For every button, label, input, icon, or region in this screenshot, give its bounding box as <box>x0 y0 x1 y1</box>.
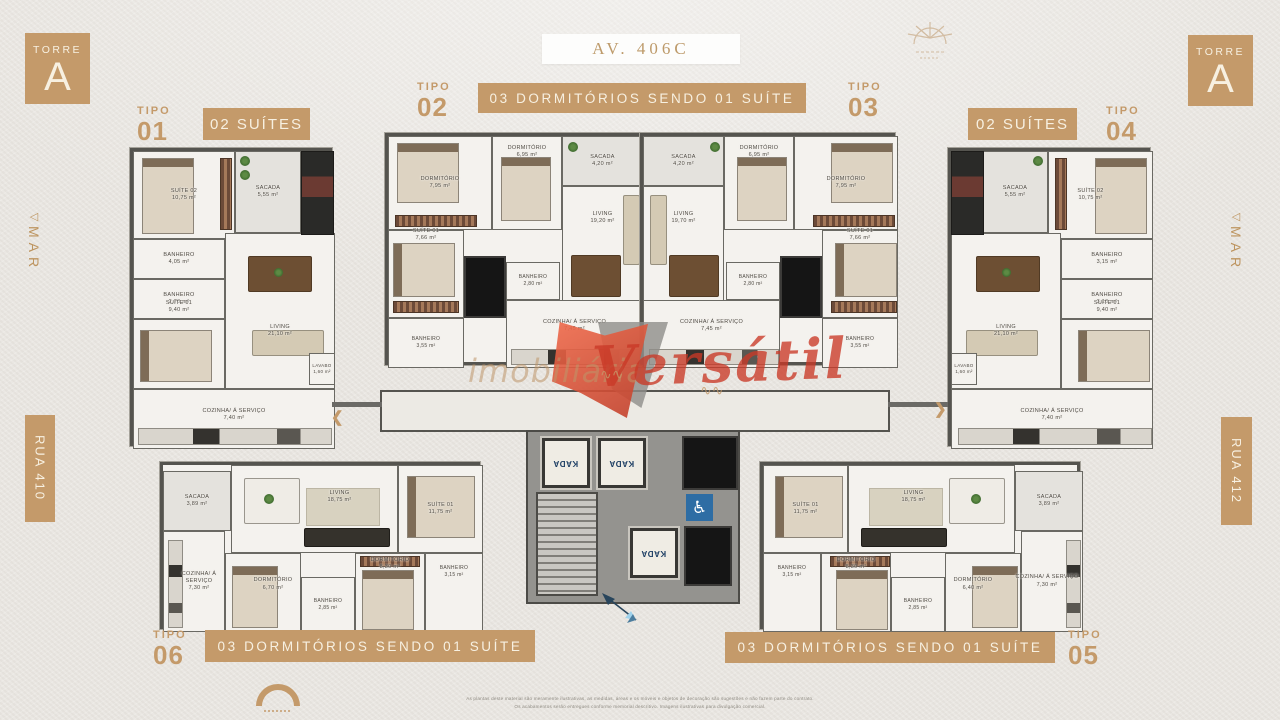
avenue-banner: AV. 406C <box>542 34 740 64</box>
room-area: 5,55 m² <box>1005 192 1026 199</box>
room-suite-02: SUÍTE 0210,75 m² <box>1048 151 1153 239</box>
room-cozinha: COZINHA/ Á SERVIÇO7,40 m² <box>951 389 1153 449</box>
mar-arrow-icon: ◁ <box>28 210 41 226</box>
room-name: BANHEIRO <box>1091 252 1122 259</box>
mar-arrow-icon: ◁ <box>1230 210 1243 226</box>
tipo-number: 06 <box>153 642 187 668</box>
room-area: 7,30 m² <box>189 585 210 592</box>
room-area: 4,05 m² <box>169 259 190 266</box>
room-area: 6,40 m² <box>963 585 984 592</box>
watermark-flourish-icon: ∿∿ <box>600 366 623 383</box>
elevator-shaft-block <box>684 526 732 586</box>
mar-direction-right: ◁ MAR <box>1228 210 1244 290</box>
room-name: DORMITÓRIO <box>837 557 876 564</box>
room-sacada: SACADA4,20 m² <box>643 136 724 186</box>
disclaimer-line-1: As plantas deste material são meramente … <box>430 695 850 703</box>
building-core: KADA KADA KADA ♿ <box>526 430 740 604</box>
room-dormitorio: DORMITÓRIO6,40 m² <box>945 553 1021 632</box>
room-area: 3,89 m² <box>1039 501 1060 508</box>
tipo-03-label: TIPO 03 <box>848 82 882 120</box>
room-area: 21,10 m² <box>994 331 1018 338</box>
room-suite-01: SUÍTE 019,40 m² <box>133 319 225 389</box>
unit-tipo-01: SUÍTE 0210,75 m² SACADA5,55 m² BANHEIRO4… <box>130 148 332 446</box>
room-name: LIVING <box>904 490 924 497</box>
room-name: LIVING <box>270 324 290 331</box>
room-area: 8,30 m² <box>380 564 401 571</box>
tipo-04-label: TIPO 04 <box>1106 106 1140 144</box>
room-banheiro: BANHEIRO2,80 m² <box>506 262 560 300</box>
room-name: LIVING <box>674 211 694 218</box>
room-living: LIVING19,70 m² <box>643 186 724 308</box>
service-shaft-block <box>301 151 334 235</box>
room-area: 2,85 m² <box>318 605 337 612</box>
room-name: SUÍTE 02 <box>1077 188 1103 195</box>
elevator-shaft-block <box>682 436 738 490</box>
unit-tipo-04: SACADA5,55 m² SUÍTE 0210,75 m² BANHEIRO3… <box>948 148 1150 446</box>
room-area: 3,55 m² <box>416 343 435 350</box>
suites-badge-left: 02 SUÍTES <box>203 108 310 140</box>
room-name: BANHEIRO <box>778 565 807 572</box>
legal-disclaimer: As plantas deste material são meramente … <box>430 695 850 711</box>
room-name: BANHEIRO <box>519 274 548 281</box>
bed-furniture <box>835 243 897 297</box>
room-area: 6,95 m² <box>517 152 538 159</box>
watermark-flourish-icon: ∿∿ <box>700 382 723 399</box>
room-area: 5,55 m² <box>258 192 279 199</box>
bed-furniture <box>140 330 212 382</box>
room-dormitorio: DORMITÓRIO8,30 m² <box>821 553 891 632</box>
room-living: LIVING21,10 m² <box>225 233 335 389</box>
room-area: 2,80 m² <box>743 281 762 288</box>
mar-direction-left: ◁ MAR <box>26 210 42 290</box>
room-name: DORMITÓRIO <box>421 176 460 183</box>
torre-a-badge-right: TORRE A <box>1188 35 1253 106</box>
room-name: COZINHA/ Á SERVIÇO <box>1020 408 1083 415</box>
room-suite-01: SUÍTE 0111,75 m² <box>398 465 483 553</box>
room-area: 10,75 m² <box>172 195 196 202</box>
room-dormitorio: DORMITÓRIO6,70 m² <box>225 553 301 632</box>
room-area: 6,70 m² <box>263 585 284 592</box>
room-banheiro: BANHEIRO2,80 m² <box>726 262 780 300</box>
room-name: SUÍTE 02 <box>171 188 197 195</box>
room-banheiro: BANHEIRO3,15 m² <box>425 553 483 632</box>
room-name: DORMITÓRIO <box>827 176 866 183</box>
room-area: 10,75 m² <box>1078 195 1102 202</box>
room-banheiro: BANHEIRO3,15 m² <box>1061 239 1153 279</box>
room-area: 7,66 m² <box>416 235 437 242</box>
tipo-02-label: TIPO 02 <box>417 82 451 120</box>
room-name: LIVING <box>330 490 350 497</box>
rua-410-badge: RUA 410 <box>25 415 55 522</box>
torre-letter: A <box>44 57 71 97</box>
room-area: 18,75 m² <box>327 497 351 504</box>
tipo-number: 03 <box>848 94 882 120</box>
room-area: 11,75 m² <box>429 509 453 516</box>
room-cozinha: COZINHA/ Á SERVIÇO7,30 m² <box>1021 531 1083 632</box>
room-name: SACADA <box>1037 494 1061 501</box>
room-name: DORMITÓRIO <box>954 577 993 584</box>
room-area: 19,20 m² <box>590 218 614 225</box>
rua-412-badge: RUA 412 <box>1221 417 1252 525</box>
room-name: SACADA <box>256 185 280 192</box>
room-dormitorio: DORMITÓRIO7,95 m² <box>794 136 898 230</box>
room-name: COZINHA/ Á SERVIÇO <box>543 319 606 326</box>
room-name: COZINHA/ Á SERVIÇO <box>175 571 223 585</box>
elevator-2: KADA <box>598 438 646 488</box>
room-name: BANHEIRO <box>739 274 768 281</box>
room-banheiro: BANHEIRO2,85 m² <box>301 577 355 632</box>
dining-table-furniture <box>669 255 719 297</box>
room-suite-01: SUÍTE 019,40 m² <box>1061 319 1153 389</box>
room-sacada: SACADA3,89 m² <box>1015 471 1083 531</box>
floorplan-poster: TORRE A TORRE A AV. 406C 03 DORMITÓRIOS … <box>0 0 1280 720</box>
unit-tipo-06: SACADA3,89 m² LIVING18,75 m² SUÍTE 0111,… <box>160 462 480 629</box>
room-name: COZINHA/ Á SERVIÇO <box>1015 574 1078 581</box>
room-area: 2,80 m² <box>523 281 542 288</box>
dining-table-furniture <box>571 255 621 297</box>
room-name: BANHEIRO <box>163 252 194 259</box>
elevator-shaft-block <box>464 256 506 318</box>
avenue-label: AV. 406C <box>592 39 690 59</box>
room-name: DORMITÓRIO <box>740 145 779 152</box>
room-name: BANHEIRO <box>412 336 441 343</box>
tipo-number: 05 <box>1068 642 1102 668</box>
room-area: 6,95 m² <box>749 152 770 159</box>
top-banner-label: 03 DORMITÓRIOS SENDO 01 SUÍTE <box>490 91 795 106</box>
room-area: 18,75 m² <box>901 497 925 504</box>
chevron-right-icon: ❯ <box>934 400 947 418</box>
room-living: LIVING19,20 m² <box>562 186 643 308</box>
room-name: DORMITÓRIO <box>508 145 547 152</box>
room-name: SACADA <box>671 154 695 161</box>
suites-label: 02 SUÍTES <box>210 116 303 133</box>
room-name: SUÍTE 01 <box>847 228 873 235</box>
room-banheiro: BANHEIRO4,05 m² <box>133 239 225 279</box>
room-name: SUÍTE 01 <box>166 300 192 307</box>
room-sacada: SACADA4,20 m² <box>562 136 643 186</box>
room-area: 3,15 m² <box>782 572 801 579</box>
disclaimer-line-2: Os acabamentos serão entregues conforme … <box>430 703 850 711</box>
room-name: DORMITÓRIO <box>254 577 293 584</box>
room-living: LIVING21,10 m² <box>951 233 1061 389</box>
room-banheiro: BANHEIRO3,15 m² <box>763 553 821 632</box>
room-area: 3,15 m² <box>1097 259 1118 266</box>
room-cozinha: COZINHA/ Á SERVIÇO7,30 m² <box>163 531 225 632</box>
footer-arc-logo <box>250 684 306 716</box>
room-area: 21,10 m² <box>268 331 292 338</box>
elevator-shaft-block <box>780 256 822 318</box>
wheelchair-icon: ♿ <box>692 498 707 518</box>
unit-tipo-05: SUÍTE 0111,75 m² LIVING18,75 m² SACADA3,… <box>760 462 1080 629</box>
room-name: BANHEIRO <box>440 565 469 572</box>
torre-letter: A <box>1207 59 1234 99</box>
mar-label: MAR <box>1228 226 1244 272</box>
room-name: SUÍTE 01 <box>1094 300 1120 307</box>
room-name: COZINHA/ Á SERVIÇO <box>680 319 743 326</box>
room-area: 3,89 m² <box>187 501 208 508</box>
elevator-brand-logo: KADA <box>641 549 666 558</box>
room-name: BANHEIRO <box>314 598 343 605</box>
tipo-number: 01 <box>137 118 171 144</box>
room-area: 7,95 m² <box>430 183 451 190</box>
bottom-banner-label: 03 DORMITÓRIOS SENDO 01 SUÍTE <box>738 640 1043 655</box>
room-area: 7,30 m² <box>1037 582 1058 589</box>
room-area: 9,40 m² <box>169 307 190 314</box>
compass-north-arrow <box>600 592 644 626</box>
accessibility-sign: ♿ <box>686 494 713 521</box>
elevator-brand-logo: KADA <box>609 459 634 468</box>
developer-sun-logo <box>900 18 960 66</box>
room-dormitorio: DORMITÓRIO6,95 m² <box>492 136 562 230</box>
bottom-banner-label: 03 DORMITÓRIOS SENDO 01 SUÍTE <box>218 639 523 654</box>
service-shaft-block <box>951 151 984 235</box>
room-cozinha: COZINHA/ Á SERVIÇO7,40 m² <box>133 389 335 449</box>
stairs <box>536 492 598 596</box>
wall-segment <box>332 402 382 407</box>
room-area: 3,55 m² <box>850 343 869 350</box>
tipo-06-label: TIPO 06 <box>153 630 187 668</box>
tipo-01-label: TIPO 01 <box>137 106 171 144</box>
room-area: 7,95 m² <box>836 183 857 190</box>
tipo-number: 02 <box>417 94 451 120</box>
room-name: BANHEIRO <box>846 336 875 343</box>
rua-label: RUA 410 <box>33 435 48 501</box>
room-area: 4,20 m² <box>592 161 613 168</box>
room-dormitorio: DORMITÓRIO8,30 m² <box>355 553 425 632</box>
wardrobe-furniture <box>393 301 459 313</box>
room-sacada: SACADA3,89 m² <box>163 471 231 531</box>
mar-label: MAR <box>26 226 42 272</box>
room-name: SACADA <box>590 154 614 161</box>
room-area: 4,20 m² <box>673 161 694 168</box>
room-area: 2,85 m² <box>908 605 927 612</box>
top-banner: 03 DORMITÓRIOS SENDO 01 SUÍTE <box>478 83 806 113</box>
tipo-number: 04 <box>1106 118 1140 144</box>
room-suite-02: SUÍTE 0210,75 m² <box>133 151 235 239</box>
chevron-left-icon: ❮ <box>331 408 344 426</box>
bed-furniture <box>393 243 455 297</box>
suites-badge-right: 02 SUÍTES <box>968 108 1077 140</box>
room-name: SUÍTE 01 <box>413 228 439 235</box>
room-name: SACADA <box>185 494 209 501</box>
suites-label: 02 SUÍTES <box>976 116 1069 133</box>
room-name: LIVING <box>996 324 1016 331</box>
room-banheiro: BANHEIRO3,55 m² <box>388 318 464 368</box>
room-name: SUÍTE 01 <box>427 502 453 509</box>
room-sacada: SACADA5,55 m² <box>235 151 301 233</box>
room-name: COZINHA/ Á SERVIÇO <box>202 408 265 415</box>
room-area: 8,30 m² <box>846 564 867 571</box>
elevator-3: KADA <box>630 528 678 578</box>
bottom-banner-right: 03 DORMITÓRIOS SENDO 01 SUÍTE <box>725 632 1055 663</box>
room-area: 3,15 m² <box>444 572 463 579</box>
bed-furniture <box>1078 330 1150 382</box>
room-area: 7,40 m² <box>1042 415 1063 422</box>
room-suite-01: SUÍTE 017,66 m² <box>822 230 898 318</box>
plant-furniture <box>264 494 274 504</box>
room-area: 7,40 m² <box>224 415 245 422</box>
elevator-brand-logo: KADA <box>553 459 578 468</box>
room-suite-01: SUÍTE 017,66 m² <box>388 230 464 318</box>
room-dormitorio: DORMITÓRIO7,95 m² <box>388 136 492 230</box>
wardrobe-furniture <box>831 301 897 313</box>
room-name: LIVING <box>593 211 613 218</box>
rua-label: RUA 412 <box>1229 438 1244 504</box>
elevator-1: KADA <box>542 438 590 488</box>
room-dormitorio: DORMITÓRIO6,95 m² <box>724 136 794 230</box>
room-name: SACADA <box>1003 185 1027 192</box>
room-area: 7,66 m² <box>850 235 871 242</box>
tipo-05-label: TIPO 05 <box>1068 630 1102 668</box>
bottom-banner-left: 03 DORMITÓRIOS SENDO 01 SUÍTE <box>205 630 535 662</box>
room-name: DORMITÓRIO <box>371 557 410 564</box>
torre-a-badge-left: TORRE A <box>25 33 90 104</box>
room-area: 19,70 m² <box>671 218 695 225</box>
room-area: 9,40 m² <box>1097 307 1118 314</box>
